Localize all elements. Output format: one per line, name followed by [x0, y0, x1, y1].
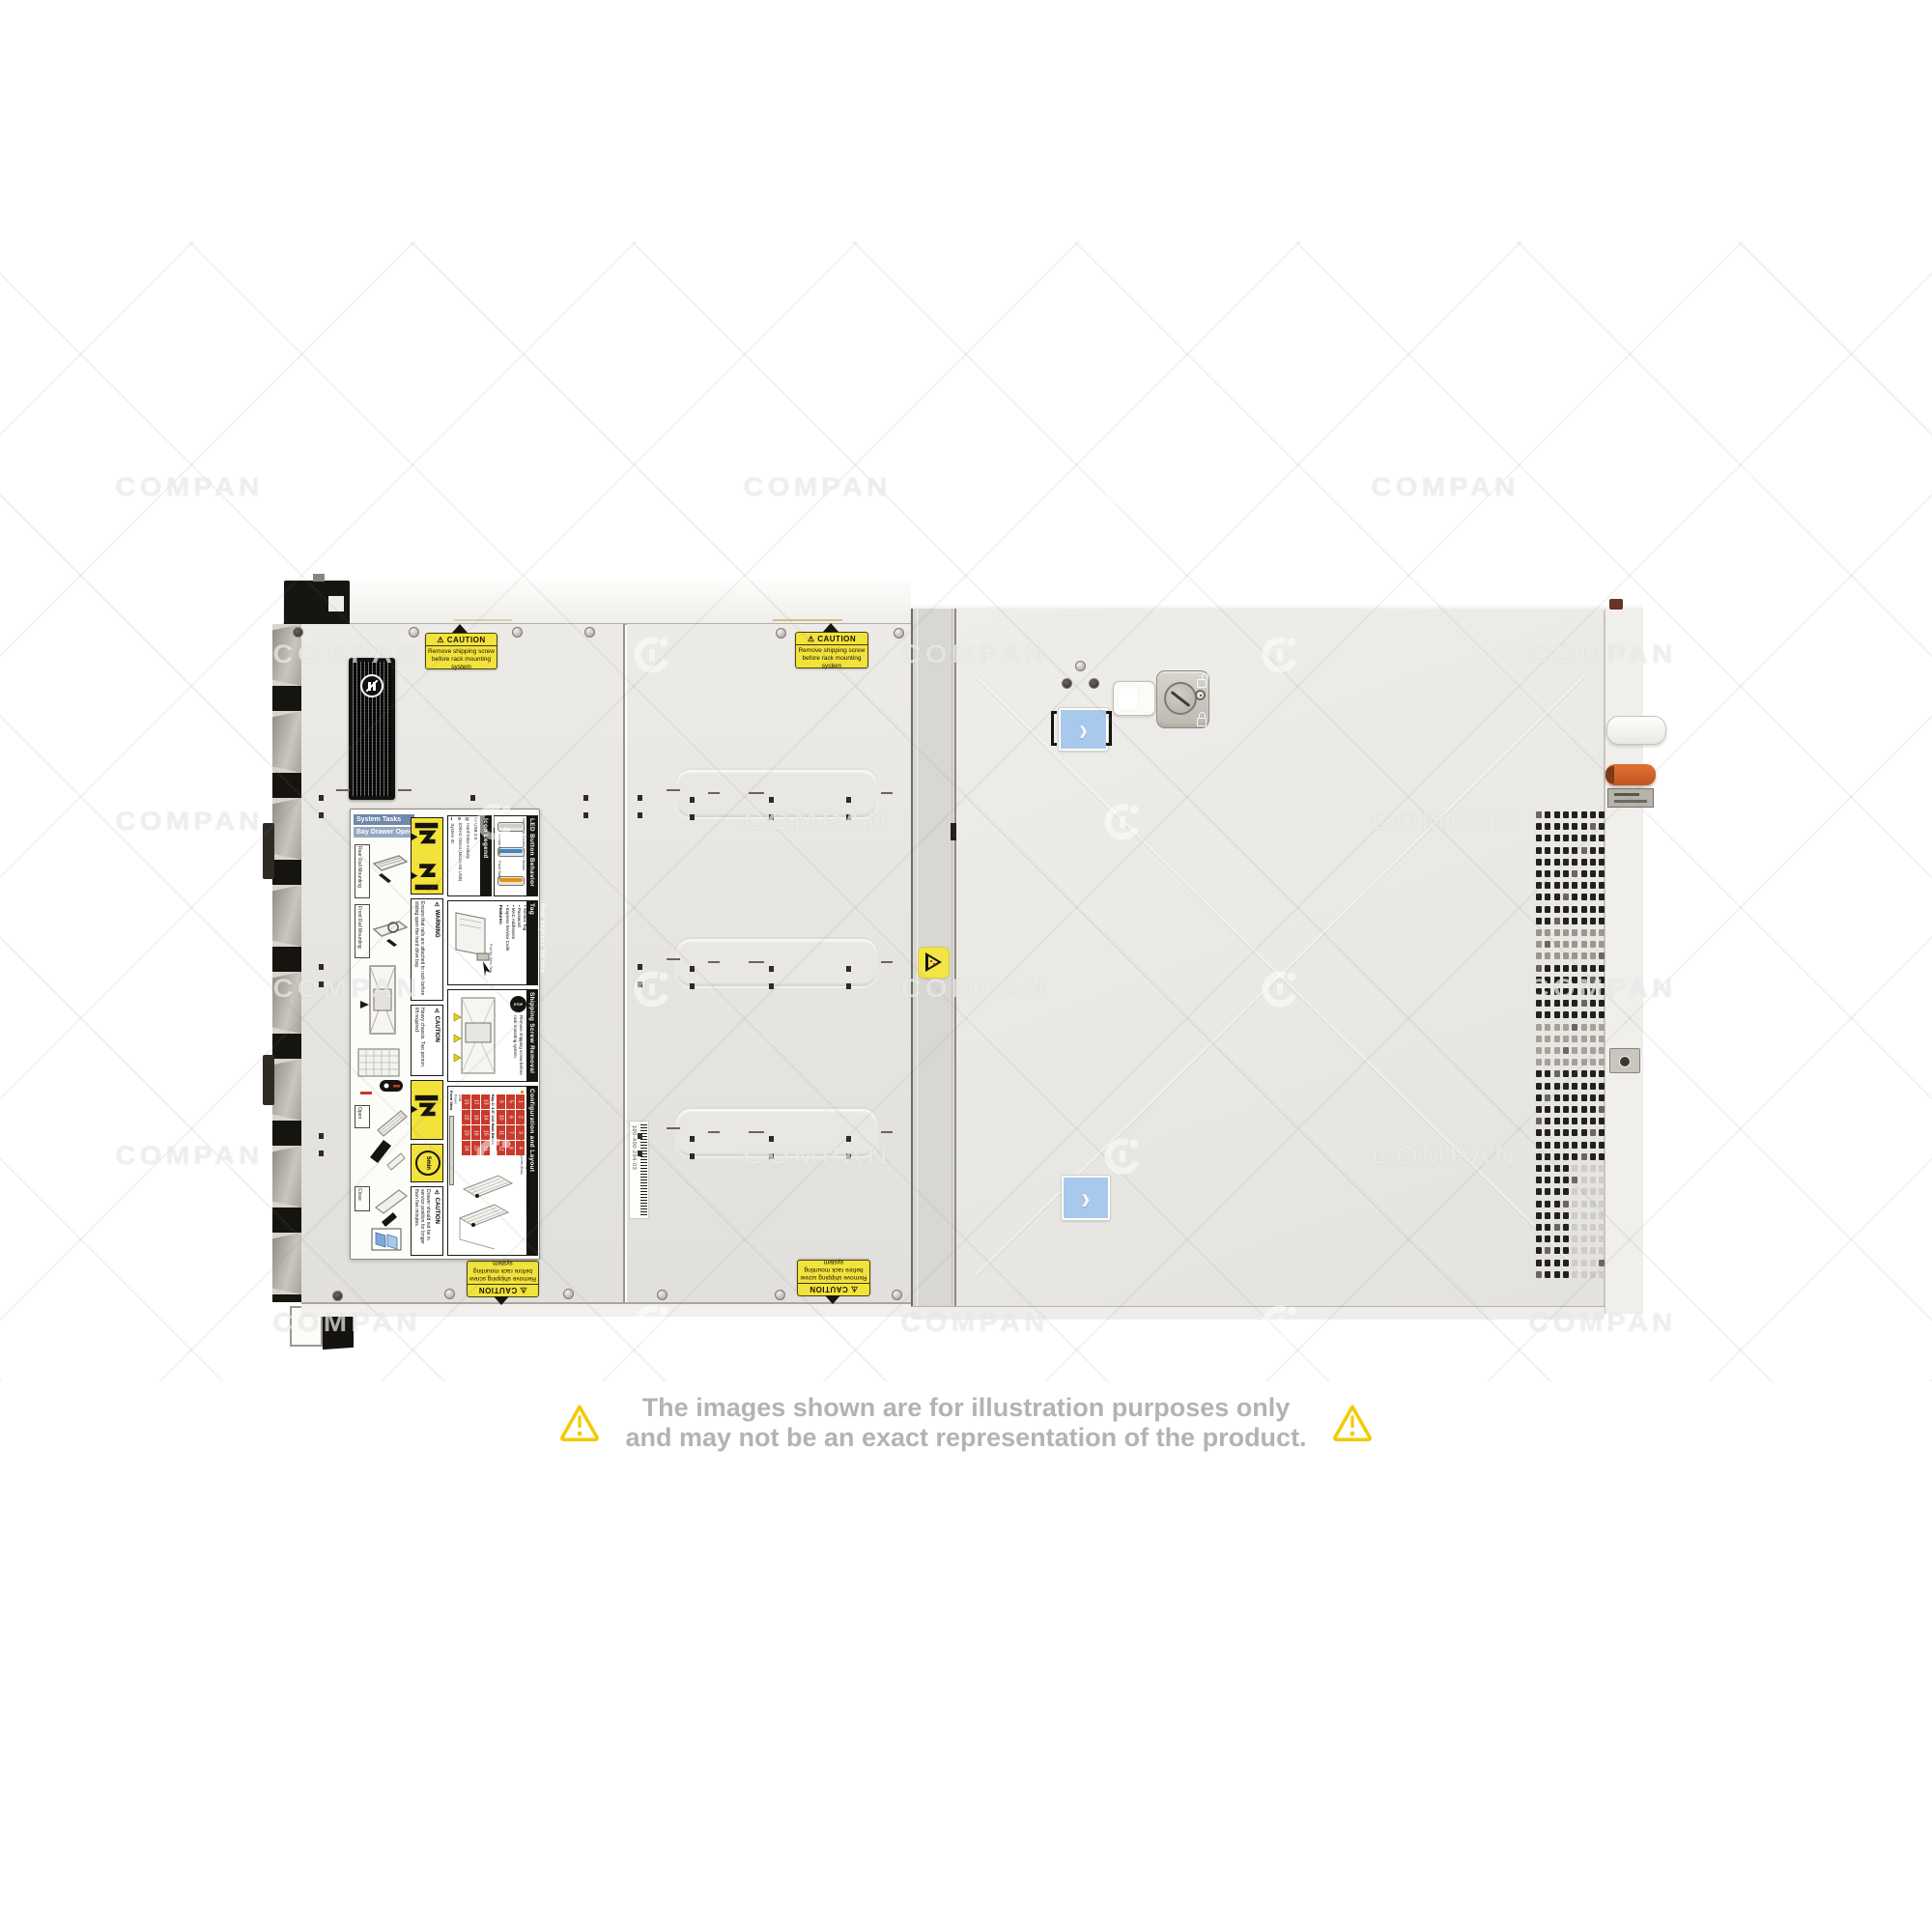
panel-screw — [444, 1289, 455, 1299]
vent-hole — [1545, 1070, 1550, 1077]
vent-hole — [1581, 1236, 1587, 1242]
vent-hole — [1581, 988, 1587, 995]
chevron-right-icon: › — [1082, 1179, 1091, 1217]
disclaimer-banner: The images shown are for illustration pu… — [483, 1389, 1449, 1457]
icon-legend-box: Icon Legend ℹ System ID⚙ iDRAC Direct (M… — [447, 815, 492, 896]
vent-hole — [1572, 1247, 1577, 1254]
vent-dash-pair — [583, 788, 591, 823]
vent-hole — [1572, 1271, 1577, 1278]
vent-hole — [1581, 941, 1587, 948]
vent-hole — [1563, 1236, 1569, 1242]
vent-hole — [1581, 1201, 1587, 1207]
vent-hole — [1554, 835, 1560, 841]
vent-hole — [1572, 1201, 1577, 1207]
caution-title: ⚠ CAUTION — [434, 1189, 440, 1224]
shipping-screw-box: Shipping Screw Removal STOP Remove shipp… — [447, 989, 538, 1082]
vent-hole — [1572, 952, 1577, 959]
bay-cell: 16 — [481, 1141, 490, 1155]
chassis-top-wall-left — [283, 580, 911, 625]
vent-hole — [1581, 1165, 1587, 1172]
vent-hole — [1545, 1236, 1550, 1242]
lock-pin-hole — [1195, 690, 1206, 700]
bezel-wedge — [272, 972, 301, 1034]
vent-dash-pair — [769, 959, 777, 994]
shipping-rack-illustration — [450, 994, 510, 1079]
vent-hole — [1545, 965, 1550, 972]
bezel-gap — [272, 1121, 301, 1146]
bay-cell: 23 — [462, 1125, 470, 1140]
vent-hole — [1563, 906, 1569, 913]
vent-hole — [1536, 1011, 1542, 1018]
vent-hole — [1590, 1129, 1596, 1136]
caution-title: ⚠ CAUTION — [426, 634, 497, 646]
vent-hole — [1590, 1271, 1596, 1278]
vent-hole — [1590, 1224, 1596, 1231]
vent-hole — [1545, 977, 1550, 983]
chassis-bottom-lip-left — [301, 1302, 911, 1317]
vent-hole — [1590, 1036, 1596, 1042]
caution-title: ⚠ CAUTION — [796, 633, 867, 645]
vent-hole — [1536, 918, 1542, 924]
vent-hole — [1563, 1036, 1569, 1042]
lock-screw — [1164, 682, 1197, 715]
vent-hole — [1572, 1059, 1577, 1065]
vent-hole — [1563, 1011, 1569, 1018]
vent-hole — [1563, 1000, 1569, 1007]
vent-hole — [1581, 965, 1587, 972]
vent-hole — [1563, 894, 1569, 900]
bay-cell: 1 — [516, 1094, 525, 1109]
vent-hole — [1545, 1188, 1550, 1195]
lock-screw-slot — [1171, 691, 1191, 707]
config-iso-illustration — [456, 1164, 518, 1253]
lid-latch-handle — [1113, 681, 1155, 716]
vent-hole — [1536, 859, 1542, 866]
rear-metal-clip — [1607, 788, 1654, 808]
vent-hole — [1536, 1188, 1542, 1195]
orange-handle-cap — [1605, 766, 1614, 783]
bay-cell: 6 — [506, 1110, 515, 1124]
vent-dash-line — [336, 789, 350, 791]
vent-hole — [1581, 823, 1587, 830]
vent-hole — [1545, 1247, 1550, 1254]
vent-dash-line — [667, 789, 680, 791]
bezel-wedge — [272, 798, 301, 860]
lid-rivet — [1089, 678, 1099, 689]
vent-hole — [1563, 1118, 1569, 1124]
vent-hole — [1590, 1094, 1596, 1101]
vent-hole — [1572, 894, 1577, 900]
vent-dash-line — [398, 789, 412, 791]
vent-hole — [1581, 1271, 1587, 1278]
vent-hole — [1563, 1271, 1569, 1278]
bezel-wedge — [272, 711, 301, 773]
vent-hole — [1554, 1036, 1560, 1042]
hinge-warning-sticker — [919, 948, 949, 978]
bay-cell: 15 — [481, 1125, 490, 1140]
vent-hole — [1536, 988, 1542, 995]
vent-hole — [1545, 1153, 1550, 1160]
vent-hole — [1590, 941, 1596, 948]
lock-icon — [1197, 712, 1207, 726]
step-caption: Front Rail Mounting — [355, 904, 370, 958]
service-tag-title: Rear Express Service Tag — [526, 903, 548, 984]
vent-hole — [1590, 1000, 1596, 1007]
vent-hole — [1545, 823, 1550, 830]
vent-hole — [1545, 1165, 1550, 1172]
kapton-tape-mark — [454, 619, 512, 621]
vent-hole — [1536, 1106, 1542, 1113]
caution-line2: before rack mounting system — [426, 656, 497, 671]
vent-hole — [1545, 1059, 1550, 1065]
dot — [930, 960, 932, 962]
barcode-text: 100-400-294-03 — [631, 1125, 637, 1170]
latch-tab — [1118, 686, 1139, 711]
vent-hole — [1581, 1070, 1587, 1077]
vent-hole — [1590, 811, 1596, 818]
vent-dash-line — [708, 792, 720, 794]
vent-hole — [1581, 906, 1587, 913]
vent-hole — [1572, 1083, 1577, 1090]
step6-close-illustration — [368, 1182, 409, 1254]
rack-ear-tab — [313, 574, 325, 582]
vent-hole — [1554, 1000, 1560, 1007]
vent-hole — [1590, 988, 1596, 995]
clip-detail — [1614, 800, 1647, 803]
bay-cell: 13 — [481, 1094, 490, 1109]
vent-hole — [1572, 1165, 1577, 1172]
triangle-right-icon-inner — [928, 956, 938, 968]
crush-hazard-box — [411, 817, 443, 895]
vent-hole — [1554, 1118, 1560, 1124]
vent-hole — [1536, 1070, 1542, 1077]
vent-hole — [1590, 1153, 1596, 1160]
vent-hole — [1563, 1247, 1569, 1254]
vent-hole — [1590, 1188, 1596, 1195]
led-title: LED Button Behavior — [526, 818, 537, 887]
timer-badge: 5min — [425, 1156, 431, 1170]
watermark-logo-icon — [1729, 467, 1772, 509]
vent-hole — [1563, 1129, 1569, 1136]
vent-hole — [1590, 870, 1596, 877]
vent-hole — [1572, 1188, 1577, 1195]
vent-hole — [1545, 1083, 1550, 1090]
vent-hole — [1545, 1000, 1550, 1007]
vent-hole — [1545, 941, 1550, 948]
vent-hole — [1581, 1094, 1587, 1101]
pointer-triangle-icon — [494, 1296, 509, 1305]
vent-hole — [1536, 1271, 1542, 1278]
vent-hole — [1563, 847, 1569, 854]
stop-icon: STOP — [510, 996, 526, 1012]
warning-text: Ensure that rails are attached to rack b… — [413, 901, 425, 996]
disclaimer-line1: The images shown are for illustration pu… — [625, 1393, 1306, 1423]
vent-hole — [1581, 1188, 1587, 1195]
vent-hole — [1554, 1224, 1560, 1231]
bay2-grid: 211713221814231915242016 — [462, 1094, 490, 1155]
product-photo-stage: › › ⚠ — [0, 0, 1932, 1932]
vent-hole — [1545, 1036, 1550, 1042]
vent-hole — [1554, 918, 1560, 924]
vent-hole — [1572, 1212, 1577, 1219]
vent-hole — [1563, 1106, 1569, 1113]
caution-line2: before rack mounting system — [796, 655, 867, 670]
vent-hole — [1554, 952, 1560, 959]
vent-hole — [1536, 906, 1542, 913]
chevron-right-icon: › — [1079, 711, 1088, 749]
close-label: Close — [356, 1188, 362, 1201]
watermark-text: COMPAN — [1371, 472, 1519, 502]
bay-cell: 24 — [462, 1141, 470, 1155]
vent-hole — [1536, 1024, 1542, 1031]
watermark-logo-icon — [473, 467, 516, 509]
vent-hole — [1590, 1177, 1596, 1183]
vent-hole — [1536, 1000, 1542, 1007]
vent-hole — [1536, 1212, 1542, 1219]
vent-hole — [1554, 1083, 1560, 1090]
pointer-triangle-icon — [825, 1295, 840, 1304]
vent-hole — [1590, 1106, 1596, 1113]
vent-dash-line — [708, 961, 720, 963]
vent-hole — [1545, 1142, 1550, 1149]
caution-line2: before rack mounting system — [798, 1258, 869, 1273]
vent-hole — [1536, 1153, 1542, 1160]
caution-heavy-text: Heavy chassis. Two person lift required. — [413, 1008, 425, 1071]
vent-hole — [1554, 1260, 1560, 1266]
caution-sticker: ⚠ CAUTION Remove shipping screw before r… — [795, 632, 868, 668]
rack-ear-top-left — [284, 581, 350, 625]
vent-hole — [1572, 1236, 1577, 1242]
vent-hole — [1572, 1177, 1577, 1183]
caution-title: ⚠ CAUTION — [798, 1283, 869, 1295]
bezel-gap — [272, 773, 301, 798]
vent-hole — [1581, 870, 1587, 877]
bay2-label: Bay 2: 3.5" x12 Hard Drives — [491, 1094, 496, 1145]
vent-hole — [1563, 965, 1569, 972]
step3-rack-illustration — [356, 962, 407, 1037]
vent-hole — [1590, 1165, 1596, 1172]
bay-cell: 2 — [516, 1110, 525, 1124]
vent-hole — [1590, 1260, 1596, 1266]
vent-hole — [1554, 811, 1560, 818]
bezel-wedge — [272, 885, 301, 947]
vent-hole — [1545, 1106, 1550, 1113]
bezel-gap — [272, 1294, 301, 1302]
vent-hole — [1536, 1165, 1542, 1172]
vent-hole — [1572, 811, 1577, 818]
features-title: Features: — [498, 905, 503, 982]
vent-hole — [1545, 847, 1550, 854]
vent-hole — [1563, 1083, 1569, 1090]
vent-hole — [1545, 1094, 1550, 1101]
vent-hole — [1536, 1047, 1542, 1054]
vent-hole — [1536, 941, 1542, 948]
vent-hole — [1590, 918, 1596, 924]
vent-hole — [1545, 1260, 1550, 1266]
bezel-gap — [272, 860, 301, 885]
vent-hole — [1536, 882, 1542, 889]
vent-hole — [1563, 941, 1569, 948]
vent-hole — [1572, 1036, 1577, 1042]
vent-dash-pair — [638, 788, 645, 823]
caution-line2: before rack mounting system — [468, 1259, 538, 1274]
vent-hole — [1536, 965, 1542, 972]
vent-hole — [1563, 1024, 1569, 1031]
vent-hole — [1536, 1201, 1542, 1207]
rack-ear-notch — [328, 596, 344, 611]
unlock-icon — [1197, 673, 1207, 688]
clip-hole — [1619, 1056, 1631, 1067]
watermark-logo-icon — [1101, 467, 1144, 509]
bracket-left-icon — [1051, 711, 1057, 746]
vent-hole — [1581, 1212, 1587, 1219]
vent-hole — [1581, 894, 1587, 900]
pointer-triangle-icon — [823, 623, 838, 632]
vent-hole — [1563, 977, 1569, 983]
vent-hole — [1590, 882, 1596, 889]
vent-hole — [1536, 977, 1542, 983]
vent-hole — [1590, 1059, 1596, 1065]
caution-sticker-flipped: ⚠ CAUTION Remove shipping screw before r… — [467, 1261, 539, 1297]
vent-dash-line — [667, 958, 680, 960]
bay-cell: 9 — [497, 1094, 505, 1109]
vent-dash-line — [881, 1131, 893, 1133]
bay-cell: 19 — [471, 1125, 480, 1140]
vent-dash-pair — [638, 957, 645, 992]
vent-dash-line — [667, 1127, 680, 1129]
config-layout-box: Configuration and Layout Touchpoints (Am… — [447, 1086, 538, 1256]
vent-dash-pair — [690, 790, 697, 825]
vent-hole — [1563, 929, 1569, 936]
vent-hole — [1563, 870, 1569, 877]
pull-tag-label: Pull for Serv Tag — [489, 944, 494, 972]
vent-hole — [1536, 1083, 1542, 1090]
vent-dash-pair — [690, 959, 697, 994]
vent-hole — [1545, 1011, 1550, 1018]
vent-hole — [1581, 1129, 1587, 1136]
icon-legend-title: Icon Legend — [480, 818, 491, 859]
five-min-clock-icon: 5min — [415, 1151, 440, 1176]
vent-hole — [1572, 847, 1577, 854]
vent-hole — [1563, 1260, 1569, 1266]
panel-screw — [657, 1290, 668, 1300]
vent-hole — [1590, 1212, 1596, 1219]
service-tag-box: Rear Express Service Tag Features: • Ser… — [447, 900, 538, 985]
vent-hole — [1572, 918, 1577, 924]
vent-hole — [1545, 894, 1550, 900]
caution-title: ⚠ CAUTION — [434, 1008, 440, 1042]
vent-hole — [1581, 1260, 1587, 1266]
caution-heavy-box: ⚠ CAUTION Heavy chassis. Two person lift… — [411, 1005, 443, 1076]
vent-hole — [1563, 1142, 1569, 1149]
vent-hole — [1581, 1153, 1587, 1160]
vent-hole — [1536, 1118, 1542, 1124]
lock-pin — [1200, 695, 1202, 696]
vent-hole — [1536, 811, 1542, 818]
bay1-grid: 951106211731284 — [497, 1094, 525, 1155]
bay-cell: 4 — [516, 1141, 525, 1155]
vent-dash-line — [749, 792, 764, 794]
vent-hole — [1581, 952, 1587, 959]
vent-hole — [1572, 1024, 1577, 1031]
bay1-label: Bay 1: 3.5" x12 Hard Drives — [526, 1162, 530, 1212]
vent-hole — [1554, 1177, 1560, 1183]
bezel-wedge — [272, 1059, 301, 1121]
rear-metal-clip-lower — [1609, 1048, 1640, 1073]
vent-hole — [1563, 1177, 1569, 1183]
vent-hole — [1572, 1142, 1577, 1149]
caution-line1: Remove shipping screw — [468, 1274, 538, 1284]
vent-hole — [1554, 882, 1560, 889]
vent-hole — [1572, 965, 1577, 972]
warning-triangle-icon — [1332, 1404, 1373, 1442]
vent-hole — [1554, 1129, 1560, 1136]
vent-hole — [1572, 929, 1577, 936]
step4-keypad-illustration — [355, 1043, 407, 1097]
vent-hole — [1536, 1094, 1542, 1101]
vent-dash-line — [749, 1131, 764, 1133]
vent-hole — [1581, 1224, 1587, 1231]
vent-hole — [1554, 859, 1560, 866]
caution-title: ⚠ CAUTION — [468, 1284, 538, 1296]
vent-hole — [1590, 1011, 1596, 1018]
panel-screw — [293, 627, 303, 638]
bay-cell: 5 — [506, 1094, 515, 1109]
warning-triangle-icon — [559, 1404, 600, 1442]
lid-rivet — [1075, 661, 1086, 671]
vent-hole — [1554, 1165, 1560, 1172]
bay-cell: 17 — [471, 1094, 480, 1109]
vent-hole — [1554, 1094, 1560, 1101]
step2-illustration — [370, 904, 409, 956]
vent-hole — [1554, 1011, 1560, 1018]
vent-hole — [1536, 1236, 1542, 1242]
warning-text-box: ⚠ WARNING Ensure that rails are attached… — [411, 898, 443, 1001]
dot — [933, 963, 935, 965]
vent-hole — [1572, 1011, 1577, 1018]
vent-hole — [1563, 859, 1569, 866]
vent-hole — [1536, 929, 1542, 936]
vent-dash-pair — [319, 1126, 327, 1161]
led-fault-label: Fault State — [497, 861, 502, 879]
vent-hole — [1545, 906, 1550, 913]
vent-hole — [1545, 1118, 1550, 1124]
vent-hole — [1536, 823, 1542, 830]
vent-hole — [1554, 1271, 1560, 1278]
crush-hazard-box2 — [411, 1080, 443, 1140]
vent-hole — [1590, 952, 1596, 959]
panel-screw — [409, 627, 419, 638]
vent-hole — [1554, 941, 1560, 948]
vent-hole — [1590, 965, 1596, 972]
vent-hole — [1563, 835, 1569, 841]
bezel-gap — [272, 686, 301, 711]
vent-hole — [1563, 1059, 1569, 1065]
vent-hole — [1554, 847, 1560, 854]
release-handle-orange — [1605, 764, 1656, 785]
bezel-gap — [272, 947, 301, 972]
vent-dash-pair — [319, 957, 327, 992]
vent-hole — [1590, 1047, 1596, 1054]
vent-hole — [1536, 870, 1542, 877]
caution-line1: Remove shipping screw — [796, 645, 867, 655]
vent-hole — [1563, 811, 1569, 818]
vent-dash-pair — [638, 1126, 645, 1161]
vent-hole — [1572, 1094, 1577, 1101]
vent-hole — [1563, 1094, 1569, 1101]
pointer-triangle-icon — [452, 624, 468, 633]
vent-hole — [1590, 1247, 1596, 1254]
